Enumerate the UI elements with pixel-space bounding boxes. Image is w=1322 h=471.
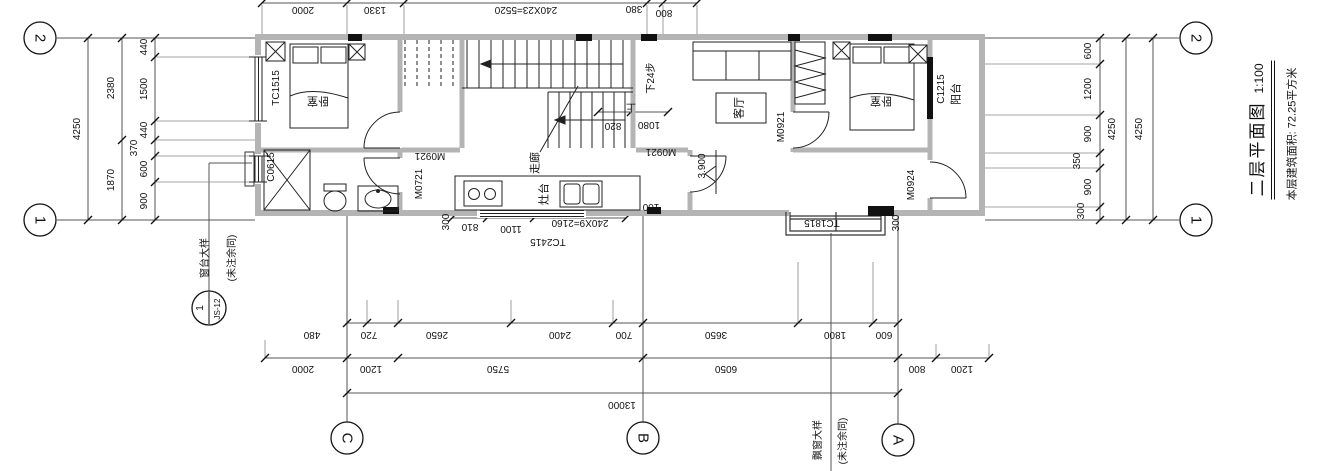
axis-label-2: 2	[33, 34, 48, 42]
fan-icon	[266, 42, 285, 61]
dim-bottom-total: 13000	[608, 399, 636, 409]
stair-up-note: 上	[626, 101, 636, 111]
dim-right-inner: 350	[1073, 153, 1083, 170]
dim-top: 1330	[364, 4, 386, 14]
dim-left-inner: 600	[140, 161, 150, 178]
callout-sill-detail-no: 1	[196, 305, 206, 311]
label-door-m0721: M0721	[415, 169, 425, 200]
label-window-c1215: C1215	[937, 74, 947, 103]
bed-left	[290, 44, 348, 128]
window-c1215	[927, 57, 933, 119]
callout-sill-note: (未注余同)	[228, 235, 238, 282]
dim-left-inner: 370	[130, 140, 140, 157]
dim-bottom-r1: 1800	[824, 329, 846, 339]
floor-plan-drawing	[0, 0, 1322, 471]
dim-balcony-side: 300	[892, 215, 902, 232]
dim-bottom-r1: 600	[876, 329, 893, 339]
label-window-tc2415: TC2415	[530, 236, 566, 246]
drawing-area-note: 本层建筑面积: 72.25平方米	[1288, 68, 1299, 201]
callout-sill-sheet-no: JS-12	[214, 299, 222, 320]
dim-right-mid: 4250	[1108, 118, 1118, 140]
label-door-m0924: M0924	[907, 170, 917, 201]
dim-bottom-r1: 720	[361, 329, 378, 339]
dim-bottom-r1: 2650	[426, 329, 448, 339]
dim-bottom-r1: 700	[616, 329, 633, 339]
axis-label-1: 1	[33, 216, 48, 224]
dim-left-mid: 1870	[107, 169, 117, 191]
dim-stair: 1080	[638, 119, 660, 129]
room-bedroom-left: 卧室	[307, 95, 329, 106]
fan-icon	[349, 44, 365, 60]
label-window-c0615: C0615	[267, 152, 277, 181]
room-bedroom-right: 卧室	[870, 95, 892, 106]
bed-right	[850, 44, 914, 130]
axis-label-b: B	[636, 433, 651, 443]
room-balcony: 阳台	[952, 83, 963, 105]
label-window-tc1815: TC1815	[804, 217, 840, 227]
floor-plan-sheet: 4250 2380 1870 440 1500 440 370 600 900 …	[0, 0, 1322, 471]
door-m0921-living	[690, 156, 726, 192]
fan-icons	[266, 42, 927, 63]
furniture	[264, 42, 927, 211]
dim-bottom-r1: 2400	[549, 329, 571, 339]
dim-left-inner: 440	[140, 39, 150, 56]
dim-bottom-r1: 3650	[705, 329, 727, 339]
dim-left-mid: 2380	[107, 77, 117, 99]
label-stove-counter: 灶台	[540, 183, 551, 205]
dim-bottom-r2: 1200	[951, 363, 973, 373]
drawing-scale: 1:100	[1252, 63, 1266, 93]
dim-top: 2000	[292, 4, 314, 14]
label-door-m0921: M0921	[646, 146, 677, 156]
label-door-m0921: M0921	[777, 112, 787, 143]
dim-left-inner: 900	[140, 193, 150, 210]
dim-bottom-r2: 1200	[360, 363, 382, 373]
room-living: 客厅	[735, 97, 746, 119]
dim-right-inner: 900	[1084, 126, 1094, 143]
axis-label-2: 2	[1189, 34, 1204, 42]
dim-bottom-r2: 2000	[292, 363, 314, 373]
level-mark: 3.900	[698, 153, 708, 178]
dim-right-inner: 1200	[1084, 78, 1094, 100]
dim-right-outer: 4250	[1135, 118, 1145, 140]
dim-right-inner: 900	[1084, 179, 1094, 196]
dim-kitchen: 300	[442, 214, 452, 231]
wardrobe	[795, 42, 825, 104]
label-window-tc1515: TC1515	[272, 70, 282, 106]
dim-bottom-r2: 6050	[715, 363, 737, 373]
stove	[464, 181, 502, 206]
callout-bay-note: (未注余同)	[839, 418, 849, 465]
room-corridor: 走廊	[531, 152, 542, 174]
dim-right-inner: 300	[1077, 203, 1087, 220]
dim-right-inner: 600	[1084, 43, 1094, 60]
dim-kitchen: 240X9=2160	[551, 217, 608, 227]
callout-bay-name: 飘窗大样	[814, 420, 824, 460]
axis-label-1: 1	[1189, 216, 1204, 224]
fan-icon	[909, 45, 927, 63]
dim-stair: 820	[605, 120, 622, 130]
stair-down-note: 下24步	[647, 62, 657, 93]
dim-bottom-r2: 5750	[487, 363, 509, 373]
door-m0921-left-bedroom	[364, 112, 400, 148]
axis-label-c: C	[340, 433, 355, 444]
dim-left-inner: 1500	[140, 78, 150, 100]
dim-bottom-r2: 800	[909, 363, 926, 373]
door-m0924-balcony	[930, 162, 966, 198]
dim-kitchen: 810	[462, 221, 479, 231]
door-m0721-bathroom	[364, 158, 400, 194]
dim-bottom-r1: 480	[304, 329, 321, 339]
axis-label-a: A	[891, 435, 906, 445]
label-door-m0921: M0921	[415, 150, 446, 160]
callout-sill-name: 窗台大样	[201, 238, 211, 278]
door-m0921-right-bedroom	[793, 112, 829, 148]
dim-top: 800	[656, 7, 673, 17]
fan-icon	[833, 42, 850, 59]
drawing-title: 二层平面图1:100	[1243, 60, 1275, 199]
dim-top: 380	[626, 3, 643, 13]
sofa	[693, 42, 791, 80]
drawing-title-text: 二层平面图	[1248, 102, 1267, 197]
dim-kitchen: 100	[643, 201, 660, 211]
dim-top: 240X23=5520	[495, 4, 558, 14]
toilet	[324, 184, 346, 211]
dim-kitchen: 1100	[500, 223, 522, 233]
dim-left-outer: 4250	[73, 118, 83, 140]
sink	[560, 181, 602, 207]
dim-left-inner: 440	[140, 122, 150, 139]
stairs	[405, 40, 633, 152]
